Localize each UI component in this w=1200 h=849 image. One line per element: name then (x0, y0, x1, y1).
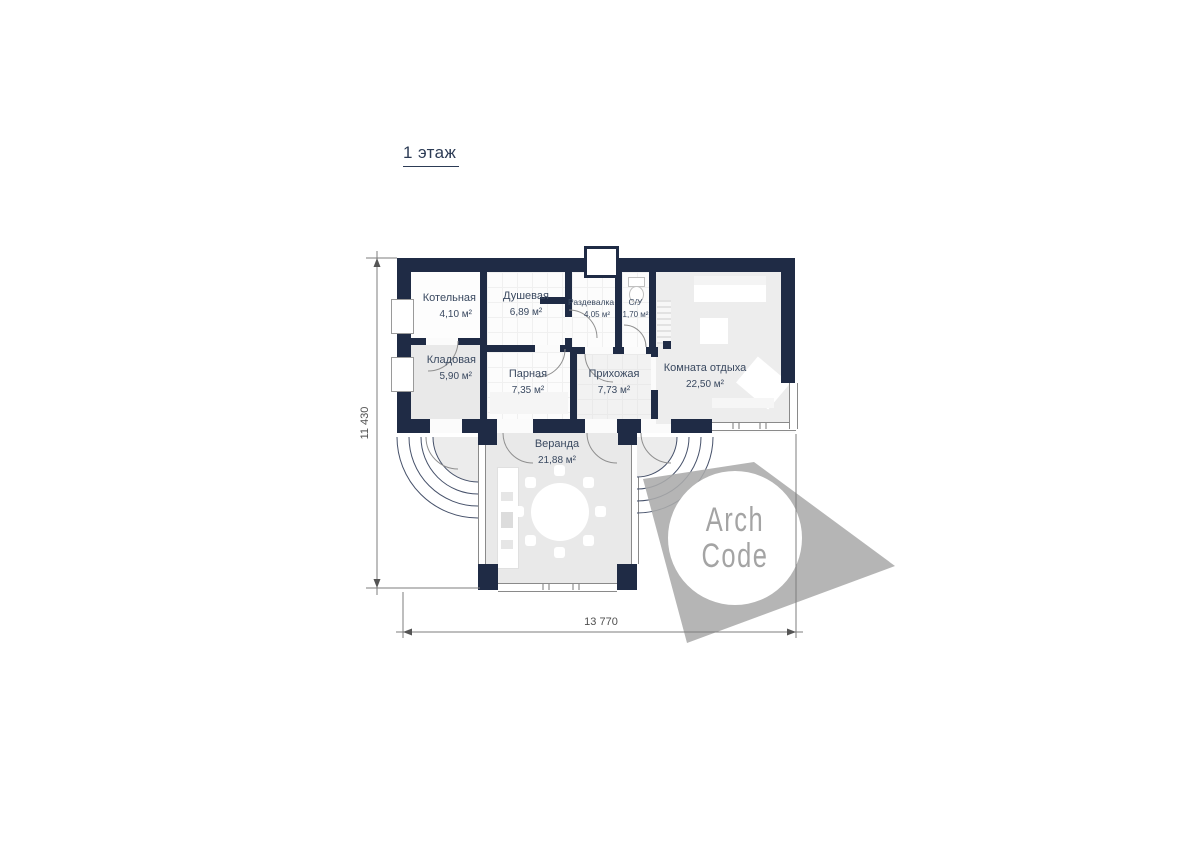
sofa-back (694, 276, 766, 285)
room-name: Веранда (505, 436, 609, 453)
wall (781, 258, 795, 383)
chair (554, 547, 565, 558)
room-area: 4,05 м² (568, 309, 614, 321)
counter-appliance (501, 492, 513, 501)
coffee-table (700, 318, 728, 344)
wall (397, 419, 430, 433)
room-area: 7,35 м² (487, 383, 569, 398)
chair (583, 535, 594, 546)
panoramic-window (789, 383, 798, 429)
round-table (531, 483, 589, 541)
room-name: Душевая (485, 288, 567, 305)
wall (651, 390, 658, 419)
wall (570, 352, 577, 419)
wall (613, 347, 624, 354)
chair (525, 477, 536, 488)
room-komnata-otdyha-label: Комната отдыха 22,50 м² (638, 360, 772, 392)
room-area: 6,89 м² (485, 305, 567, 320)
rug (712, 398, 774, 408)
wall (458, 338, 480, 345)
floor-plan-page: 1 этаж Котельная 4,10 м² Душевая 6,89 м²… (0, 0, 1200, 849)
chair (513, 506, 524, 517)
room-kotelnaya-label: Котельная 4,10 м² (404, 290, 476, 322)
wall (397, 258, 411, 433)
counter-appliance (501, 540, 513, 549)
room-name: Раздевалка (568, 296, 614, 309)
room-kladovaya-label: Кладовая 5,90 м² (404, 352, 476, 384)
chimney (584, 246, 619, 278)
floor-plan-drawing (0, 0, 1200, 849)
room-razdevalka-label: Раздевалка 4,05 м² (568, 296, 614, 321)
wall (411, 338, 426, 345)
heater (657, 300, 671, 344)
wall (646, 347, 656, 354)
room-area: 22,50 м² (638, 377, 772, 392)
veranda-wall (478, 445, 486, 564)
room-area: 21,88 м² (505, 453, 609, 468)
stove-marker (663, 341, 671, 349)
wall (671, 419, 712, 433)
wall (560, 345, 572, 352)
room-su-label: С/У 1,70 м² (620, 296, 651, 321)
room-parnaya-label: Парная 7,35 м² (487, 366, 569, 398)
veranda-post (617, 564, 637, 590)
room-name: С/У (620, 296, 651, 309)
room-area: 5,90 м² (404, 369, 476, 384)
room-dushevaya-label: Душевая 6,89 м² (485, 288, 567, 320)
veranda-post (618, 419, 637, 445)
room-area: 1,70 м² (620, 309, 651, 321)
chair (525, 535, 536, 546)
veranda-wall (631, 445, 639, 564)
wall (487, 345, 535, 352)
room-name: Комната отдыха (638, 360, 772, 377)
wall (572, 347, 585, 354)
room-name: Котельная (404, 290, 476, 307)
room-veranda-label: Веранда 21,88 м² (505, 436, 609, 468)
veranda-post (478, 564, 498, 590)
room-area: 4,10 м² (404, 307, 476, 322)
room-name: Парная (487, 366, 569, 383)
wall (533, 419, 585, 433)
veranda-window (498, 583, 617, 592)
room-name: Кладовая (404, 352, 476, 369)
veranda-post (478, 419, 497, 445)
chair (595, 506, 606, 517)
panoramic-window (712, 422, 796, 431)
counter-appliance (501, 512, 513, 528)
chair (583, 477, 594, 488)
